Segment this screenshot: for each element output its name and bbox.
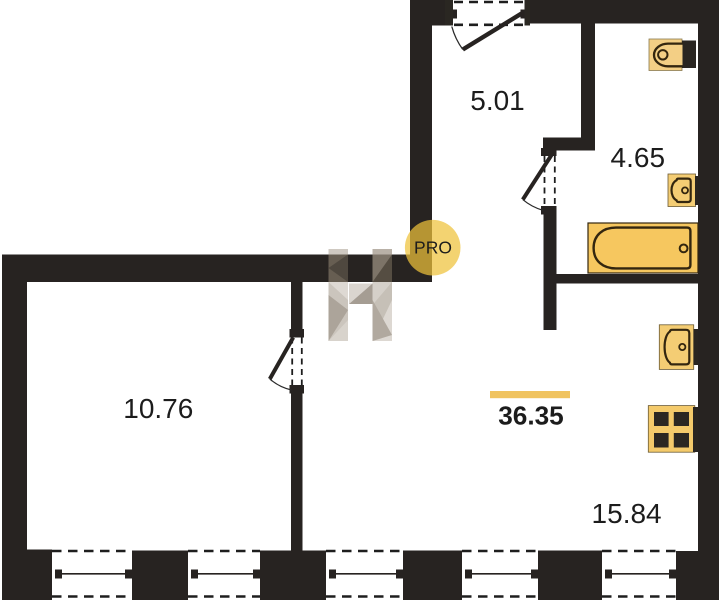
svg-text:4.65: 4.65 bbox=[611, 142, 666, 173]
svg-text:PRO: PRO bbox=[414, 237, 452, 257]
svg-text:5.01: 5.01 bbox=[470, 85, 525, 116]
svg-text:36.35: 36.35 bbox=[498, 400, 564, 430]
svg-text:10.76: 10.76 bbox=[123, 393, 193, 424]
svg-text:15.84: 15.84 bbox=[592, 498, 662, 529]
